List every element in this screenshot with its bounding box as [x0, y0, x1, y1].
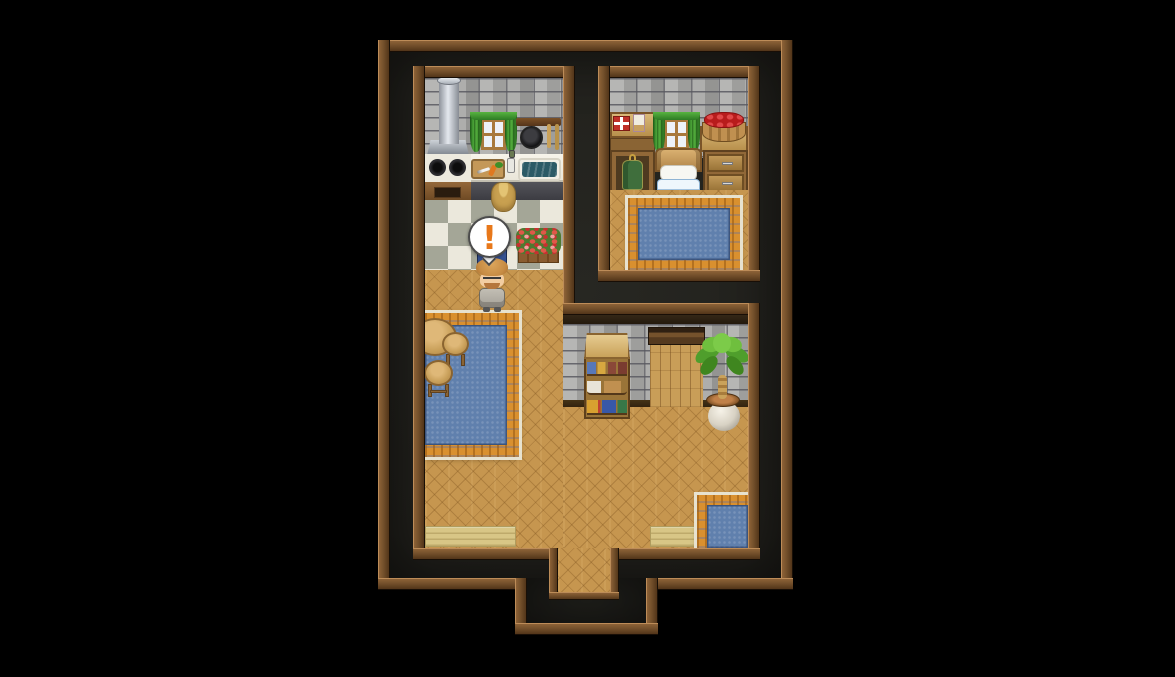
map-frame-protrusion-bottom — [515, 623, 658, 635]
doormat-left — [425, 526, 516, 547]
curtain-right — [688, 115, 700, 152]
living-wall-right — [748, 303, 760, 560]
storage-shelf[interactable] — [584, 333, 630, 423]
map-frame-top — [378, 40, 793, 52]
rug-center — [707, 505, 748, 548]
game-screen: ! — [0, 0, 1175, 677]
rug-center — [638, 208, 730, 260]
cutting-board[interactable] — [471, 159, 505, 179]
house-map: ! — [378, 40, 793, 635]
plant-trunk — [718, 375, 727, 399]
living-wall-bottom-left — [413, 548, 549, 560]
console-table[interactable] — [610, 112, 655, 152]
stool-leg — [461, 354, 465, 366]
postcard — [633, 114, 645, 132]
stool-crossbar — [430, 390, 447, 393]
oven-cabinet[interactable] — [425, 182, 471, 200]
character-glasses — [483, 277, 501, 282]
greens-icon — [495, 162, 503, 168]
spice-jar-small — [509, 150, 515, 158]
map-frame-right — [781, 40, 793, 590]
drawer-top — [707, 154, 744, 172]
frying-pan-icon — [520, 126, 543, 149]
character-feet — [483, 307, 490, 312]
stool-seat — [424, 360, 453, 386]
ladle-icon — [547, 124, 551, 148]
oven-opening — [434, 187, 461, 198]
curtain-left — [653, 115, 665, 152]
bedroom-wall-bottom — [598, 270, 760, 282]
living-wall-bottom-right — [619, 548, 760, 560]
passage-wall-cap — [549, 592, 619, 600]
sink-water — [522, 162, 557, 177]
plant-leaf — [713, 333, 731, 353]
map-frame-bottom-right — [658, 578, 793, 590]
bedroom-wall-right — [748, 66, 760, 282]
apples — [704, 112, 744, 128]
wall-top-beam — [563, 315, 748, 324]
window-pane — [664, 119, 689, 150]
flower-box — [516, 228, 561, 266]
counter-front — [471, 182, 563, 200]
small-corner-rug — [697, 495, 748, 548]
grain-sack — [491, 182, 516, 212]
bedroom-rug — [628, 198, 740, 270]
kitchen-wall-top — [413, 66, 575, 78]
shelf-top — [584, 333, 630, 359]
living-wall-top — [563, 303, 760, 315]
bedroom — [610, 78, 748, 270]
exclamation-balloon: ! — [468, 216, 511, 258]
bedroom-wall-left — [598, 66, 610, 282]
gift-box — [613, 116, 630, 131]
player-character[interactable] — [474, 258, 510, 312]
apple-basket[interactable] — [702, 112, 746, 142]
shelf-items-jars — [587, 362, 627, 376]
exit-passage-floor[interactable] — [558, 548, 610, 592]
kitchen-window — [470, 112, 517, 154]
curtain-left — [470, 115, 482, 152]
window-pane — [481, 119, 506, 150]
flowers — [516, 228, 561, 254]
stool-lower[interactable] — [424, 360, 453, 398]
shelf-items-baskets — [587, 381, 627, 395]
bedroom-wall-top — [598, 66, 760, 78]
stove[interactable] — [425, 154, 471, 182]
drawer-handle — [722, 182, 733, 185]
kitchen-wall-left — [413, 66, 425, 560]
hanging-tunic — [622, 160, 643, 190]
curtain-valance — [653, 112, 700, 120]
burner-left — [429, 159, 446, 176]
exclamation-symbol: ! — [482, 218, 497, 257]
character-feet — [494, 307, 501, 312]
curtain-valance — [470, 112, 517, 120]
map-frame-bottom-left — [378, 578, 515, 590]
chimney-pipe — [439, 80, 459, 144]
kitchen-wall-right — [563, 66, 575, 315]
doormat-right — [650, 526, 697, 547]
burner-right — [449, 159, 466, 176]
map-frame-left — [378, 40, 390, 590]
shelf-items-boxes — [587, 400, 627, 415]
drawer-handle — [722, 162, 733, 165]
stool-seat — [442, 332, 469, 356]
spice-jar-large — [507, 158, 515, 173]
character-body — [479, 288, 505, 308]
potted-plant — [696, 335, 748, 433]
whisk-icon — [555, 124, 559, 150]
sink[interactable] — [518, 158, 561, 181]
